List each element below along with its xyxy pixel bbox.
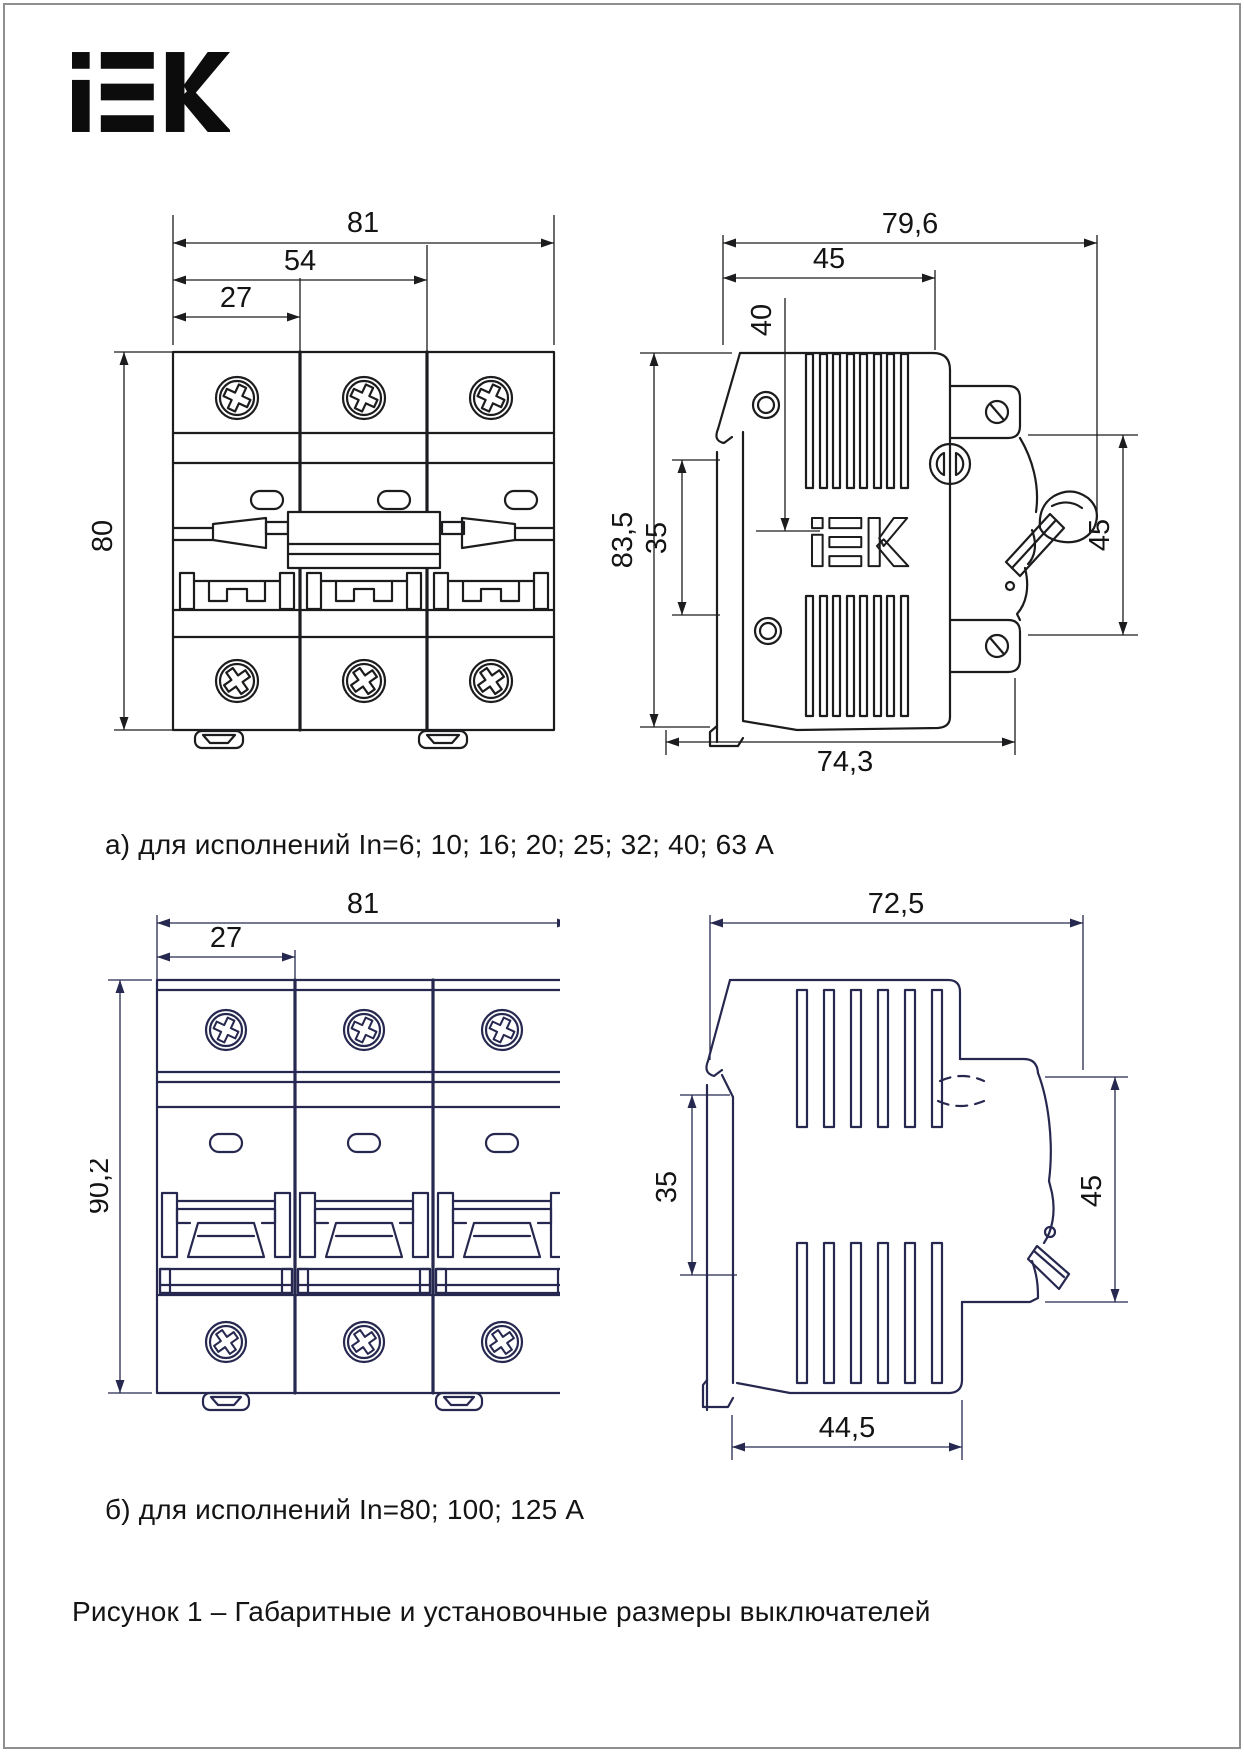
dim-side-height-a: 83,5: [607, 512, 639, 568]
front-face-curve: [1017, 438, 1037, 620]
front-a-dimension-lines: [114, 215, 554, 730]
din-clip: [203, 1393, 482, 1410]
screw-icon: [206, 1010, 522, 1050]
rivet-hole: [753, 392, 781, 644]
toggle-handle: [173, 512, 554, 568]
vent-slots: [806, 596, 908, 716]
din-clip: [195, 731, 467, 748]
dim-depth-bottom-b: 44,5: [819, 1412, 875, 1444]
iek-logo-glyphs: [72, 52, 230, 132]
dim-width-two-poles-a: 54: [284, 245, 316, 277]
front-b-body: [157, 980, 560, 1410]
iek-logo: IEK: [72, 52, 230, 132]
dim-din-window-a: 35: [641, 522, 673, 554]
datasheet-page: IEK 81 54 27 80: [0, 0, 1244, 1752]
contact-block: [180, 573, 548, 609]
contact-cover: [160, 1269, 560, 1293]
front-b-dimension-lines: [108, 915, 560, 1393]
dim-depth-top-a: 45: [813, 243, 845, 275]
dim-handle-offset-a: 40: [746, 304, 778, 336]
side-b-body: [703, 980, 1069, 1410]
caption-variant-b: б) для исполнений In=80; 100; 125 А: [105, 1494, 584, 1526]
dim-width-total-b: 81: [347, 888, 379, 920]
vent-slots: [797, 1243, 942, 1383]
dim-width-total-a: 81: [347, 207, 379, 239]
embossed-iek-logo: [812, 518, 908, 566]
indicator-window: [251, 491, 537, 509]
front-view-b: 81 27 90,2: [90, 855, 560, 1455]
dim-height-b: 90,2: [90, 1158, 115, 1214]
side-a-dimension-lines: [640, 235, 1138, 755]
screw-icon: [216, 377, 512, 419]
dim-pole-width-b: 27: [210, 922, 242, 954]
front-a-body: [173, 352, 554, 748]
dim-depth-total-a: 79,6: [882, 208, 938, 240]
din-foot: [710, 726, 743, 746]
side-a-body: [710, 353, 1097, 746]
dim-front-height-b: 45: [1076, 1175, 1108, 1207]
vent-slots: [797, 990, 942, 1127]
vent-slots: [806, 354, 908, 488]
screw-icon: [216, 660, 512, 702]
figure-caption: Рисунок 1 – Габаритные и установочные ра…: [72, 1596, 931, 1628]
terminal-block: [950, 386, 1020, 672]
side-view-a: 79,6 45 40 83,5 35 45 74,3: [560, 190, 1160, 780]
front-view-a: 81 54 27 80: [90, 190, 560, 770]
dim-pole-width-a: 27: [220, 282, 252, 314]
dim-height-a: 80: [90, 520, 119, 552]
dim-depth-total-b: 72,5: [868, 888, 924, 920]
toggle-handle: [162, 1193, 560, 1257]
indicator-window: [210, 1134, 518, 1152]
dim-din-window-b: 35: [651, 1171, 683, 1203]
screw-icon: [206, 1322, 522, 1362]
dim-depth-bottom-a: 74,3: [817, 746, 873, 778]
side-view-b: 72,5 35 45 44,5: [600, 855, 1160, 1515]
toggle-handle: [1028, 1227, 1069, 1289]
hidden-contour-dashes: [938, 1076, 984, 1106]
